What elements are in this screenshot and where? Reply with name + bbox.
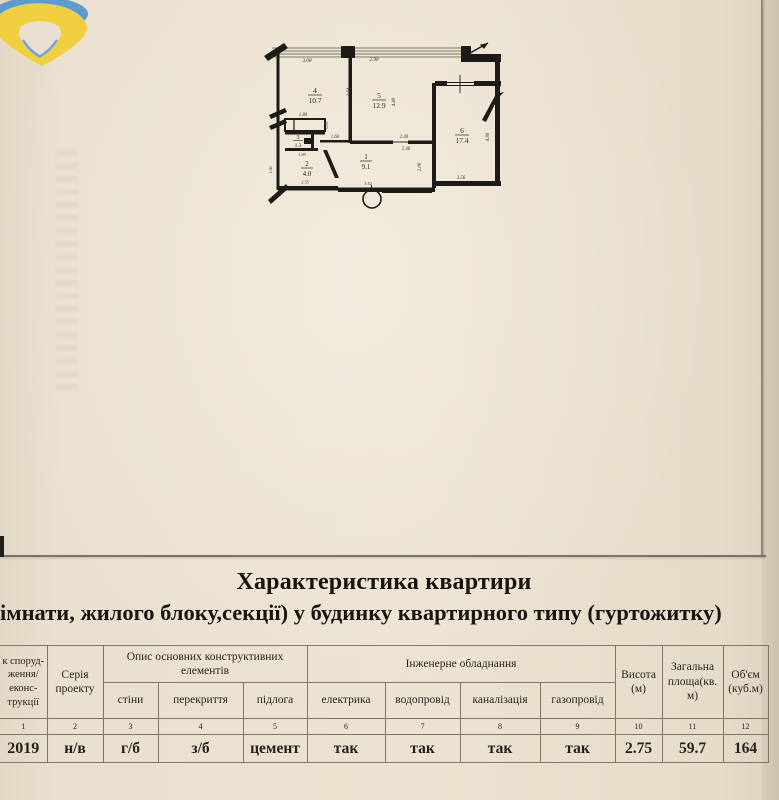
diagonal-wall — [323, 150, 339, 178]
dim-0-81: 0.81 — [324, 121, 329, 128]
room6-bottom-wall — [435, 181, 501, 186]
document-title: Характеристика квартири — [0, 569, 768, 596]
column-number: 7 — [385, 719, 460, 735]
exterior-wall-hatching — [272, 48, 470, 57]
header-project-series: Серія проекту — [47, 646, 103, 719]
plan-labels: 4 10.7 5 12.9 6 17.4 1 9.1 2 4.0 3 1.3 3… — [268, 57, 491, 186]
dim-3-52: 3.52 — [364, 181, 373, 186]
room5-area: 12.9 — [372, 101, 385, 110]
room3-area: 1.3 — [295, 143, 302, 149]
dim-4-40: 4.40 — [392, 97, 397, 106]
bath-fixture — [304, 138, 312, 144]
document-subtitle: імнати, жилого блоку,секції) у будинку к… — [0, 600, 779, 626]
dim-2-40: 2.40 — [400, 135, 409, 140]
wall-break-mark-topleft — [264, 43, 288, 61]
entry-circle — [363, 190, 381, 208]
header-group-structural-elements: Опис основних конструктивних елементів — [103, 646, 307, 683]
dim-1-85: 1.85 — [298, 152, 307, 157]
room3-bottom-wall — [285, 148, 318, 151]
header-floors-structure: перекриття — [158, 683, 243, 719]
dim-2-46: 2.46 — [402, 147, 411, 152]
room2-number: 2 — [305, 160, 309, 168]
column-number: 11 — [662, 719, 723, 735]
hall-top-wall-left — [350, 141, 393, 145]
column-number: 10 — [615, 719, 662, 735]
room4-area: 10.7 — [308, 96, 321, 105]
dim-4-88: 4.88 — [486, 132, 491, 141]
hall-top-wall-right — [408, 141, 435, 145]
header-col1-line2: ження/ — [8, 669, 39, 680]
dim-1-66: 1.66 — [268, 165, 273, 173]
header-electricity: електрика — [307, 683, 385, 719]
header-col1-line3: еконс- — [9, 683, 37, 694]
ink-bleedthrough — [56, 150, 78, 395]
room6-number: 6 — [460, 126, 464, 135]
characteristics-table: к споруд- ження/ еконс- трукції Серія пр… — [0, 645, 769, 763]
header-total-area: Загальна площа(кв. м) — [662, 646, 723, 719]
value-project-series: н/в — [47, 735, 103, 763]
header-walls: стіни — [103, 683, 158, 719]
header-col1-line4: трукції — [7, 697, 39, 708]
header-volume: Об'єм (куб.м) — [723, 646, 768, 719]
room2-area: 4.0 — [303, 170, 312, 178]
niche-wall — [320, 140, 350, 143]
floor-plan: 4 10.7 5 12.9 6 17.4 1 9.1 2 4.0 3 1.3 3… — [258, 40, 520, 222]
wardrobe — [285, 119, 325, 131]
value-total-area: 59.7 — [662, 735, 723, 763]
column-number: 1 — [0, 719, 47, 735]
walls — [264, 43, 504, 204]
column-number: 5 — [243, 719, 307, 735]
dim-3-56: 3.56 — [457, 176, 466, 181]
left-exterior-wall — [277, 52, 280, 190]
value-year: 2019 — [0, 735, 47, 763]
value-gas-supply: так — [540, 735, 615, 763]
dim-3-64: 3.64 — [347, 87, 352, 96]
wall-room4-room5 — [349, 54, 353, 143]
column-number: 3 — [103, 719, 158, 735]
balcony-arrow — [482, 92, 504, 122]
column-number: 12 — [723, 719, 768, 735]
column-number: 4 — [158, 719, 243, 735]
value-volume: 164 — [723, 735, 768, 763]
dim-3-08: 3.08 — [302, 58, 311, 64]
header-water-supply: водопровід — [385, 683, 460, 719]
header-group-engineering-equipment: Інженерне обладнання — [307, 646, 615, 683]
wall-hall-room6 — [432, 83, 436, 188]
column-number: 2 — [47, 719, 103, 735]
dim-2-55: 2.55 — [301, 180, 310, 185]
dim-2-98: 2.98 — [369, 57, 378, 63]
room1-number: 1 — [364, 153, 368, 161]
room6-right-wall — [495, 62, 500, 186]
room1-area: 9.1 — [362, 163, 371, 171]
page-gap-shadow — [0, 536, 4, 557]
room4-number: 4 — [313, 86, 317, 95]
room3-number: 3 — [297, 135, 300, 141]
window-pier — [341, 46, 355, 58]
header-col1-line1: к споруд- — [2, 656, 44, 667]
column-number: 9 — [540, 719, 615, 735]
room6-top-wall-right — [474, 81, 501, 86]
room5-number: 5 — [377, 91, 381, 100]
scanned-document-photo: { "page": { "title": "Характеристика ква… — [0, 0, 779, 800]
value-sewerage: так — [460, 735, 540, 763]
hall-bottom-wall — [338, 188, 435, 193]
dim-1-80: 1.80 — [299, 113, 308, 118]
value-floors-structure: з/б — [158, 735, 243, 763]
value-water-supply: так — [385, 735, 460, 763]
value-electricity: так — [307, 735, 385, 763]
header-floor: підлога — [243, 683, 307, 719]
value-walls: г/б — [103, 735, 158, 763]
value-floor: цемент — [243, 735, 307, 763]
heart-logo — [0, 0, 100, 76]
dim-1-60: 1.60 — [331, 135, 340, 140]
header-year-of-construction: к споруд- ження/ еконс- трукції — [0, 646, 47, 719]
header-sewerage: каналізація — [460, 683, 540, 719]
upper-page-right-edge — [761, 0, 763, 557]
value-height: 2.75 — [615, 735, 662, 763]
room2-bottom-wall — [278, 186, 338, 191]
column-number: 8 — [460, 719, 540, 735]
upper-page-bottom-edge — [0, 555, 766, 557]
room6-area: 17.4 — [455, 136, 468, 145]
room6-top-wall-left — [435, 81, 447, 86]
topright-wall-stub — [461, 46, 471, 56]
column-number: 6 — [307, 719, 385, 735]
header-height: Висота (м) — [615, 646, 662, 719]
dim-2-08: 2.08 — [418, 162, 423, 171]
header-gas-supply: газопровід — [540, 683, 615, 719]
